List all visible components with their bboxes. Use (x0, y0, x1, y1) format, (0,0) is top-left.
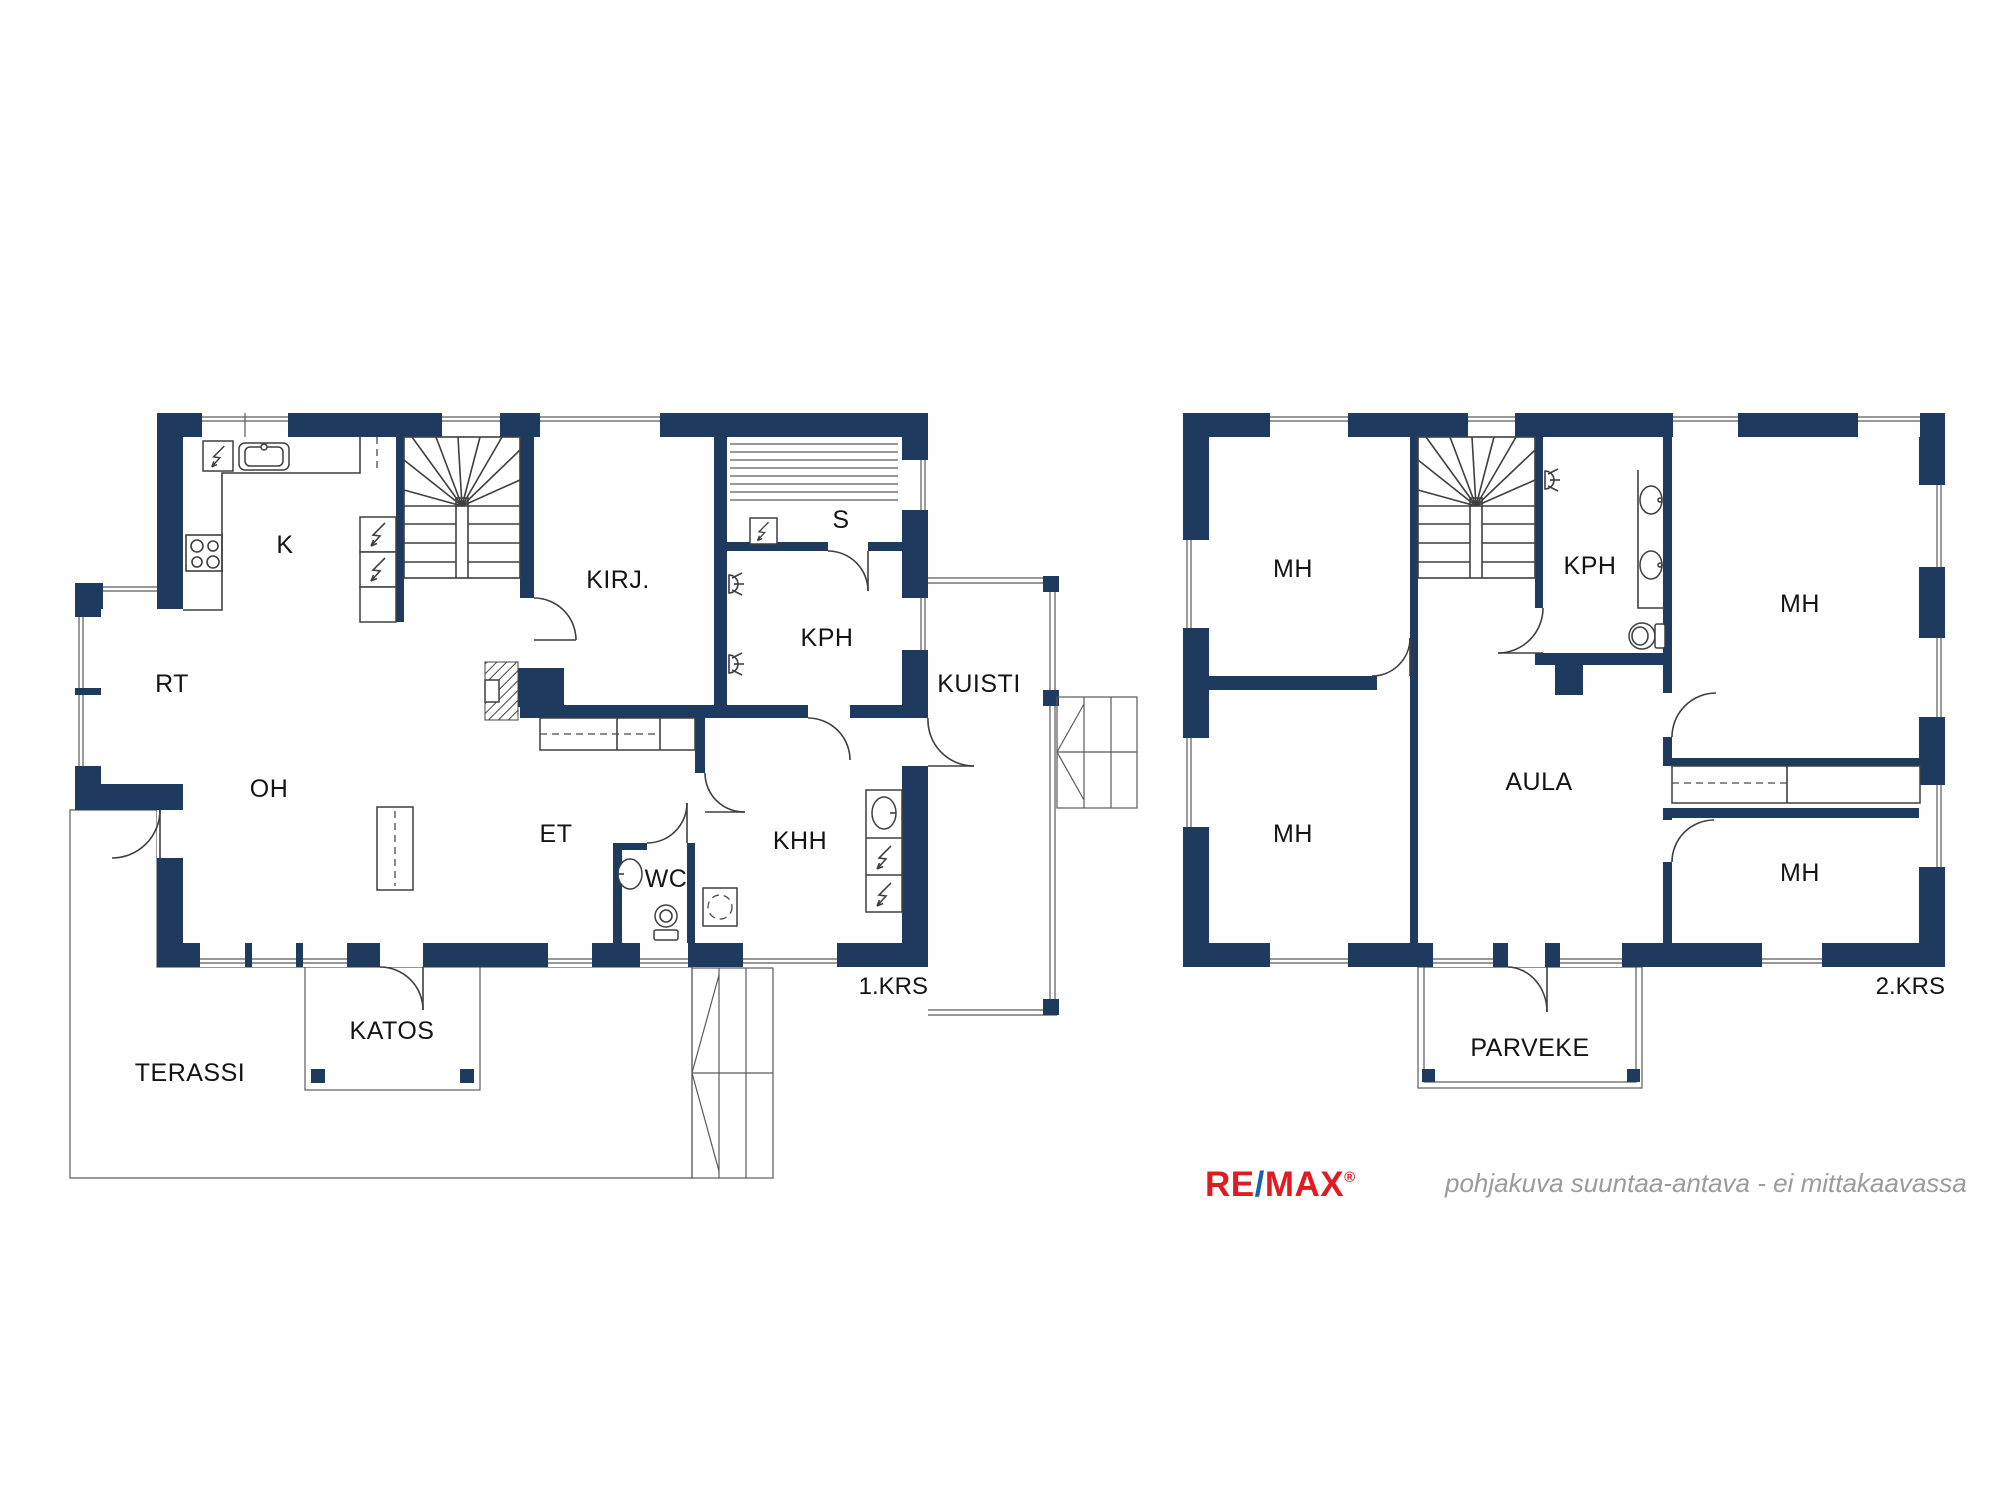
door-arc (705, 773, 745, 812)
room-label-aula: AULA (1505, 768, 1572, 796)
footer: RE/MAX® pohjakuva suuntaa-antava - ei mi… (1205, 1165, 1967, 1204)
kuisti-porch (928, 576, 1137, 1015)
aula-closet (1672, 766, 1920, 803)
exterior-stairs-icon (1057, 697, 1137, 808)
room-label-mh-bottom-left: MH (1273, 820, 1313, 848)
hall-cabinets (540, 718, 695, 750)
door-arc (1498, 608, 1543, 653)
window (202, 413, 288, 437)
window (1468, 413, 1515, 437)
window (303, 943, 347, 967)
room-label-kirj: KIRJ. (586, 566, 650, 594)
remax-logo-slash: / (1255, 1165, 1265, 1204)
window (540, 413, 660, 437)
remax-logo-max: MAX (1265, 1165, 1344, 1204)
window (1858, 413, 1920, 437)
window (1183, 738, 1209, 827)
remax-logo: RE/MAX® (1205, 1165, 1356, 1204)
room-label-parveke: PARVEKE (1470, 1034, 1589, 1062)
doors-layer (112, 551, 974, 1010)
room-label-rt: RT (155, 670, 189, 698)
shower-icon (729, 653, 744, 675)
room-label-mh-right-top: MH (1780, 590, 1820, 618)
window (1919, 485, 1945, 567)
wardrobe (377, 807, 413, 890)
sauna-benches (730, 444, 898, 500)
floor1-label: 1.KRS (859, 973, 928, 1000)
room-label-terassi: TERASSI (135, 1059, 245, 1087)
door-arc (1508, 967, 1547, 1012)
door-arc (928, 718, 974, 766)
room-label-k: K (276, 531, 293, 559)
window (200, 943, 245, 967)
window (442, 413, 500, 437)
floor-plan-1: K RT OH KIRJ. S KPH KUISTI ET WC KHH KAT… (70, 413, 1137, 1178)
sauna-heater-icon (750, 518, 777, 544)
floorplan-page: K RT OH KIRJ. S KPH KUISTI ET WC KHH KAT… (0, 0, 2000, 1500)
chimney-icon (485, 662, 518, 720)
stairs-icon (1418, 437, 1535, 578)
exterior-stairs-icon (692, 968, 773, 1178)
window (1673, 413, 1738, 437)
disclaimer-text: pohjakuva suuntaa-antava - ei mittakaava… (1444, 1168, 1967, 1198)
door-arc (808, 718, 850, 760)
door-arc (647, 803, 687, 843)
walls-layer (1183, 413, 1945, 967)
door-arc (1672, 820, 1714, 862)
window (103, 583, 157, 609)
remax-logo-re: RE (1205, 1165, 1255, 1204)
remax-logo-registered: ® (1344, 1169, 1356, 1186)
door-arc (534, 598, 576, 640)
katos-post (460, 1069, 474, 1083)
window (1762, 943, 1822, 967)
door-arc (380, 967, 423, 1010)
wall-lamp-icon (1545, 469, 1560, 491)
room-label-mh-right-bottom: MH (1780, 859, 1820, 887)
window (1270, 413, 1348, 437)
appliance-tower (360, 517, 396, 622)
toilet-icon (655, 905, 677, 927)
khh-appliances (866, 790, 902, 912)
door-arc (828, 551, 868, 591)
kph2-fixtures (1629, 470, 1665, 649)
window (902, 460, 928, 510)
window (75, 617, 101, 688)
room-label-kph2: KPH (1564, 552, 1617, 580)
fixtures-layer (1545, 469, 1920, 803)
porch-post (1043, 576, 1059, 592)
kitchen-counter (183, 437, 396, 622)
window (548, 943, 592, 967)
katos-post (311, 1069, 325, 1083)
room-label-kph: KPH (801, 624, 854, 652)
floorplan-drawing: K RT OH KIRJ. S KPH KUISTI ET WC KHH KAT… (0, 0, 2000, 1500)
door-arc (1672, 693, 1716, 737)
stove-icon (186, 535, 222, 571)
window (1183, 540, 1209, 628)
door-arc (112, 810, 160, 858)
window (1919, 638, 1945, 717)
porch-post (1043, 999, 1059, 1015)
window (252, 943, 296, 967)
floor-plan-2: MH MH KPH MH AULA MH PARVEKE 2.KRS (1183, 413, 1945, 1088)
window (640, 943, 688, 967)
room-label-wc: WC (645, 865, 688, 893)
room-label-mh-top-left: MH (1273, 555, 1313, 583)
window (1919, 785, 1945, 867)
door-arc (1372, 638, 1410, 676)
window (1433, 943, 1493, 967)
window (1560, 943, 1622, 967)
window (743, 943, 837, 967)
room-label-katos: KATOS (350, 1017, 435, 1045)
window (75, 695, 101, 766)
shower-icon (729, 573, 744, 595)
room-label-khh: KHH (773, 827, 827, 855)
room-label-oh: OH (250, 775, 289, 803)
room-label-et: ET (540, 820, 573, 848)
window (1270, 943, 1348, 967)
window (902, 598, 928, 650)
parveke-outline (1418, 967, 1642, 1088)
floor2-label: 2.KRS (1876, 973, 1945, 1000)
balcony-post (1627, 1069, 1640, 1082)
floor-drain-icon (703, 888, 737, 926)
room-label-kuisti: KUISTI (937, 670, 1021, 698)
balcony-post (1422, 1069, 1435, 1082)
room-label-s: S (832, 506, 849, 534)
stairs-icon (404, 437, 520, 578)
